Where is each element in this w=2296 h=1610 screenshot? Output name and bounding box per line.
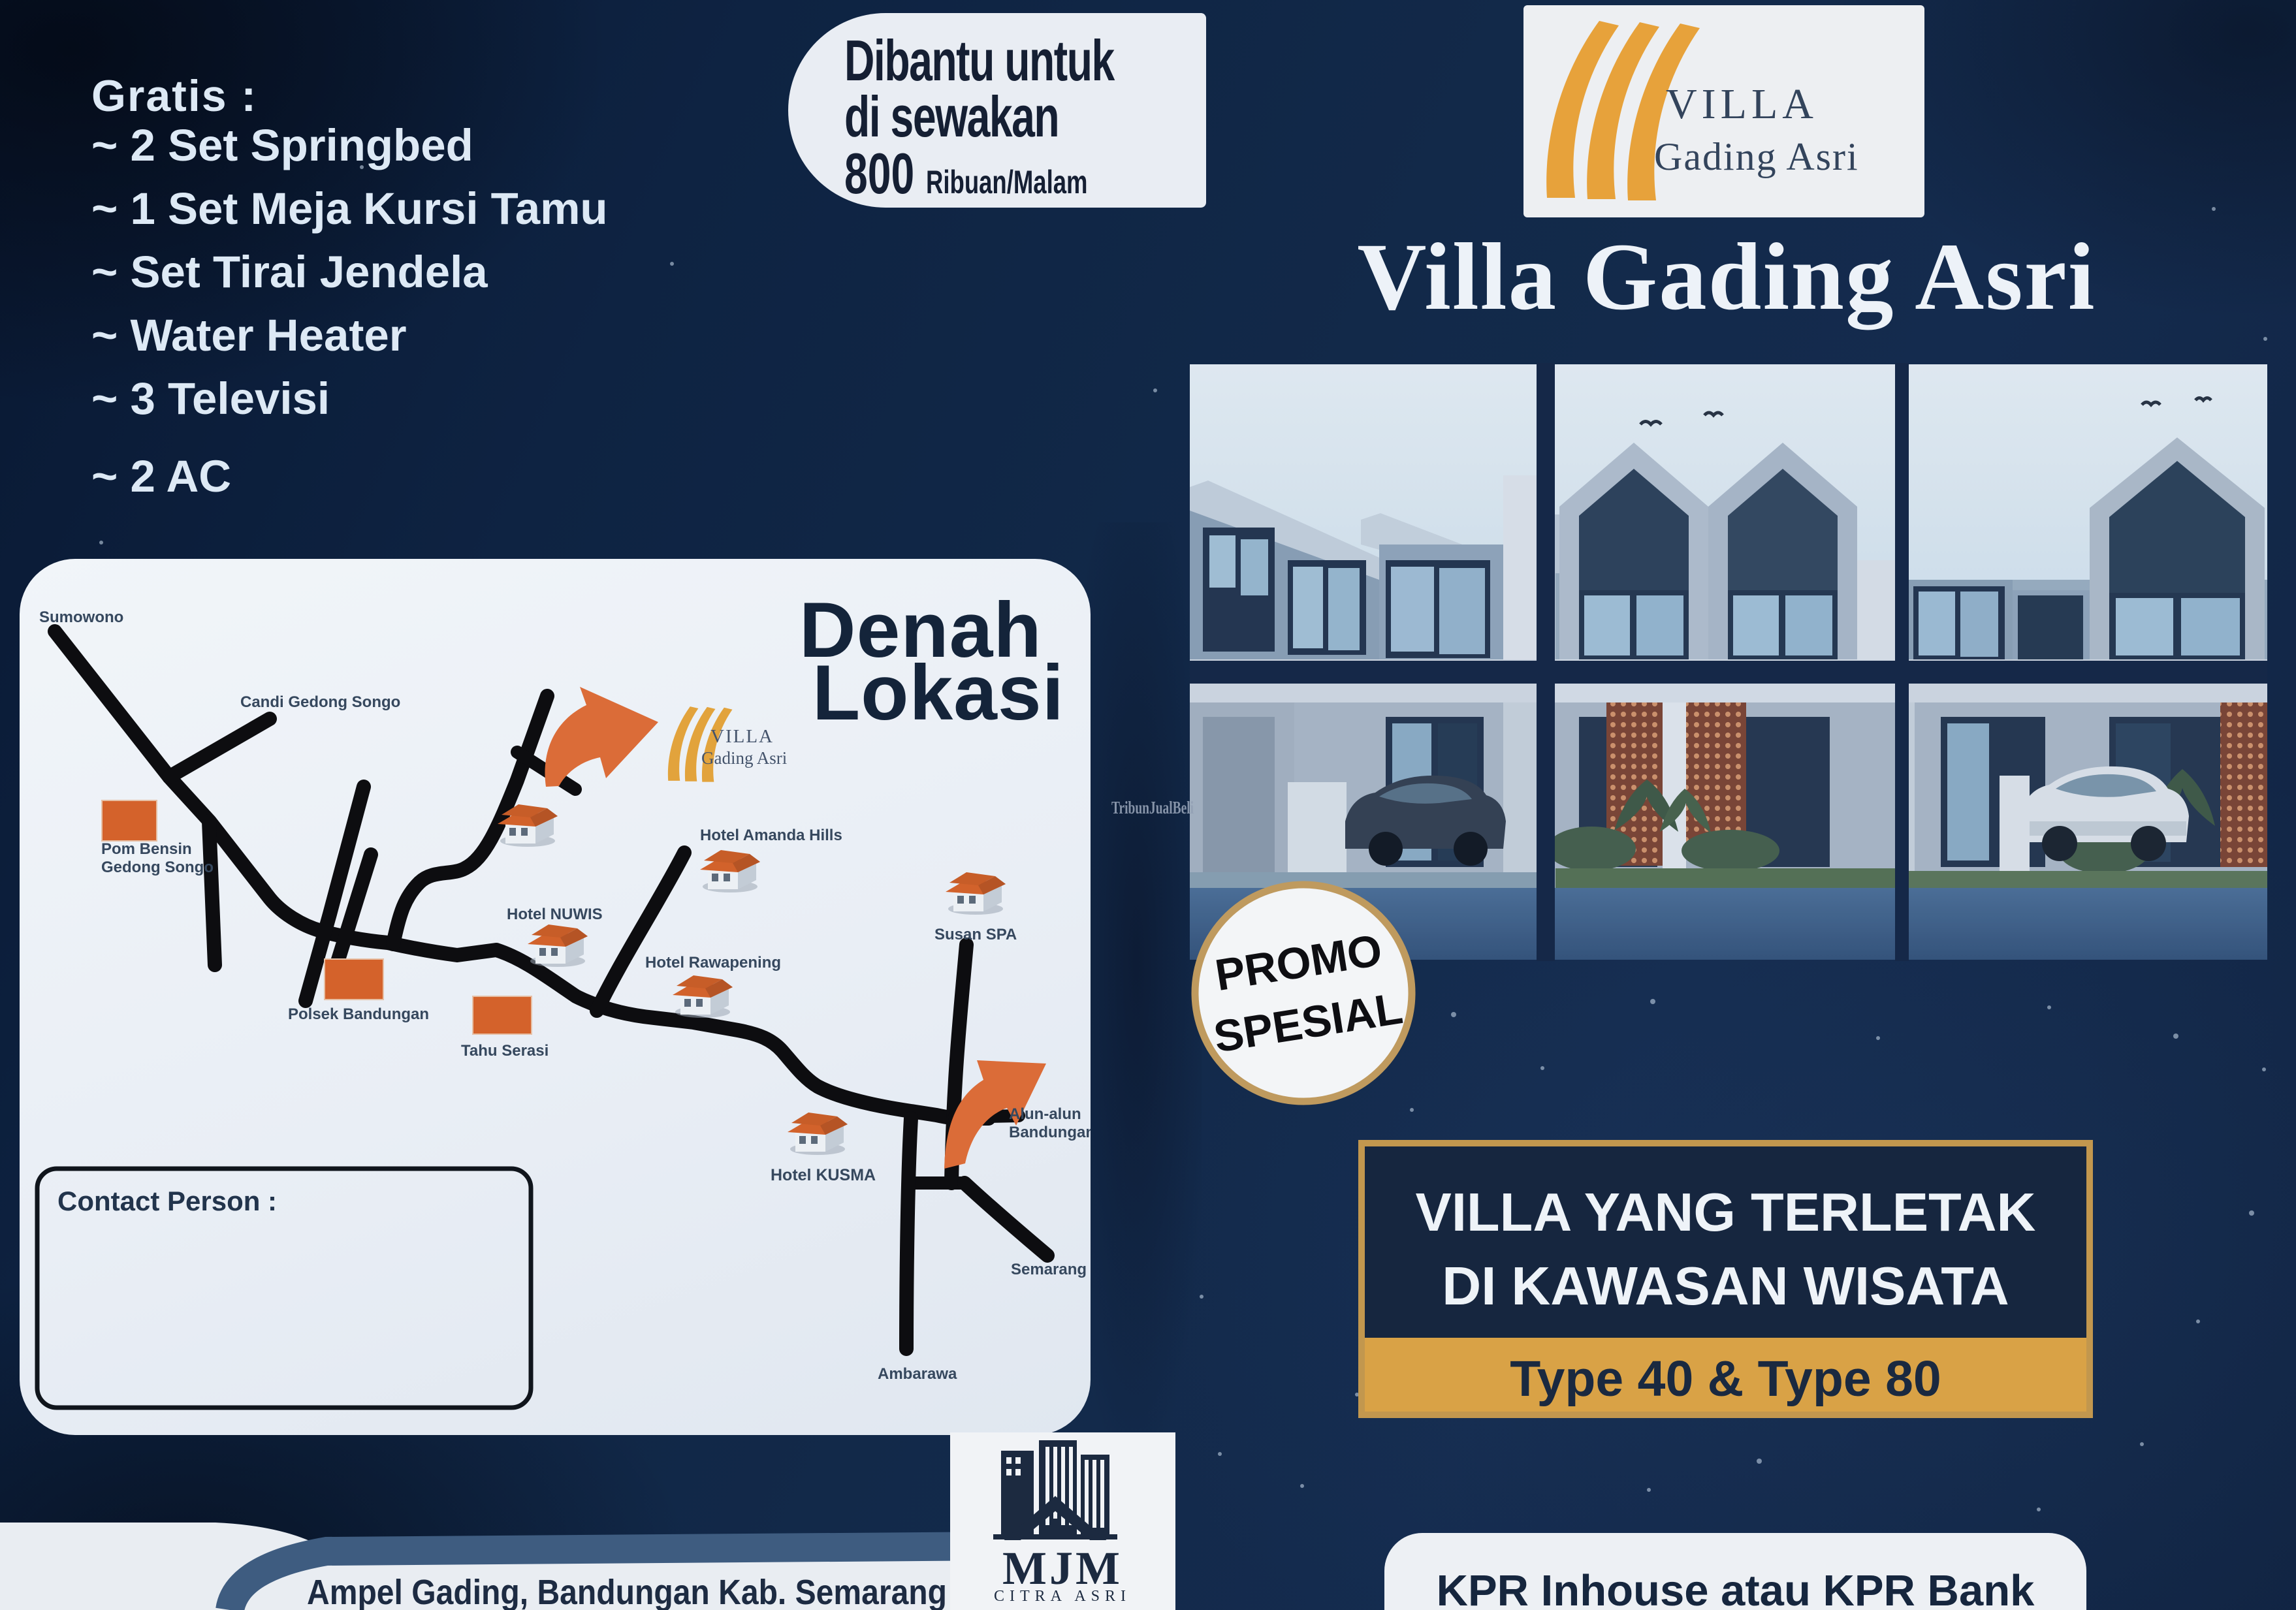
svg-text:Polsek Bandungan: Polsek Bandungan — [288, 1005, 429, 1023]
svg-text:Sumowono: Sumowono — [39, 608, 123, 626]
svg-text:Tahu Serasi: Tahu Serasi — [461, 1042, 549, 1060]
svg-text:VILLA: VILLA — [710, 726, 774, 747]
svg-text:Hotel Amanda Hills: Hotel Amanda Hills — [700, 827, 842, 844]
svg-text:Candi Gedong Songo: Candi Gedong Songo — [240, 693, 400, 711]
svg-text:Gedong Songo: Gedong Songo — [101, 859, 214, 876]
svg-text:Hotel Rawapening: Hotel Rawapening — [645, 954, 781, 971]
svg-text:Alun-alun: Alun-alun — [1009, 1105, 1081, 1123]
svg-text:Gading Asri: Gading Asri — [701, 748, 787, 768]
svg-text:Semarang: Semarang — [1011, 1261, 1087, 1278]
svg-text:Susan SPA: Susan SPA — [934, 926, 1017, 943]
svg-text:Contact Person :: Contact Person : — [57, 1186, 277, 1216]
svg-text:Hotel KUSMA: Hotel KUSMA — [771, 1166, 876, 1184]
svg-text:CITRA ASRI: CITRA ASRI — [994, 1588, 1131, 1605]
svg-text:MJM: MJM — [1002, 1542, 1123, 1594]
svg-text:Ambarawa: Ambarawa — [878, 1365, 957, 1383]
svg-text:Bandungan: Bandungan — [1009, 1124, 1091, 1141]
svg-text:Pom Bensin: Pom Bensin — [101, 840, 192, 858]
svg-text:Hotel NUWIS: Hotel NUWIS — [507, 906, 603, 923]
